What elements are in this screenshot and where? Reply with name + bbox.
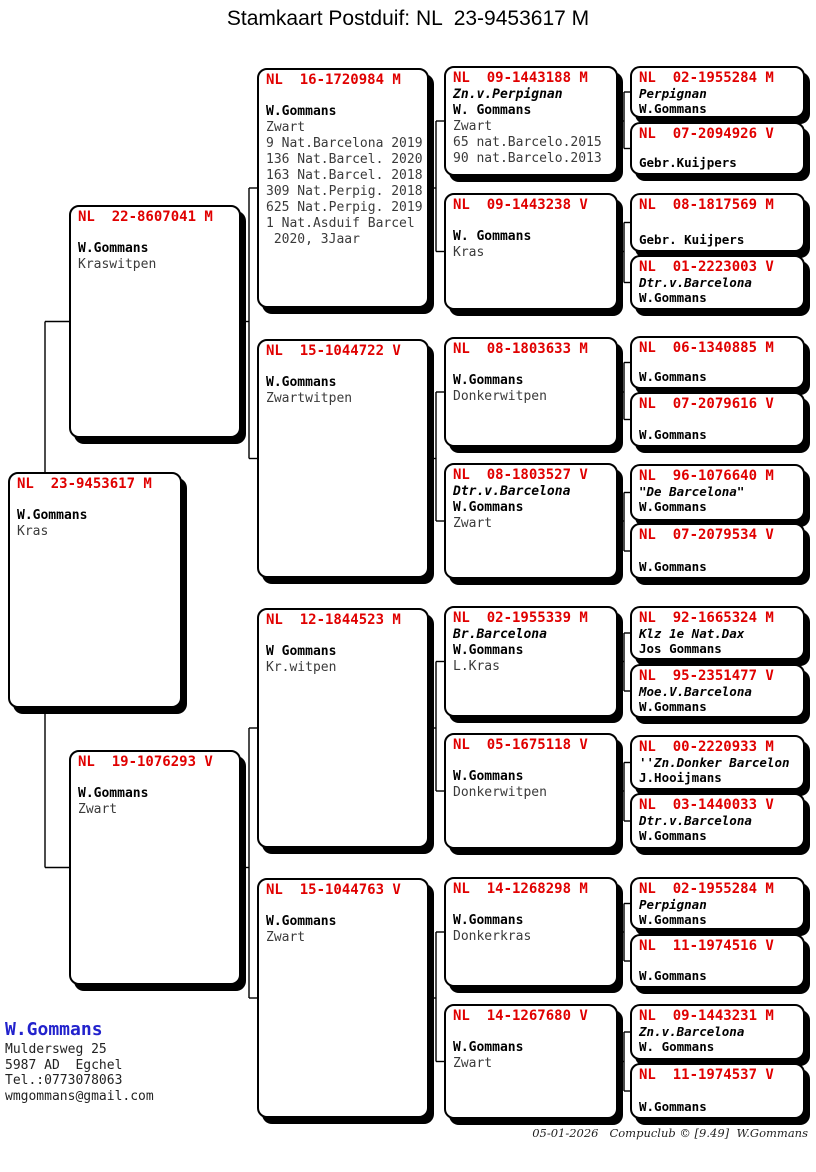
owner-name: W Gommans — [266, 644, 422, 660]
pigeon-detail: Zwart — [266, 930, 422, 946]
ring-number: NL 02-1955284 M — [639, 70, 798, 86]
pigeon-box-fffm: NL 07-2094926 VGebr.Kuijpers — [630, 122, 805, 175]
owner-name: W.Gommans — [78, 786, 234, 802]
pigeon-detail: Donkerwitpen — [453, 389, 611, 405]
ring-number: NL 08-1803633 M — [453, 341, 611, 358]
pigeon-box-fff: NL 09-1443188 MZn.v.PerpignanW. GommansZ… — [444, 66, 618, 176]
ring-number: NL 09-1443231 M — [639, 1008, 798, 1024]
pigeon-box-ffm: NL 09-1443238 VW. GommansKras — [444, 193, 618, 310]
owner-name: W.Gommans — [639, 968, 798, 983]
pigeon-box-mmff: NL 02-1955284 MPerpignanW.Gommans — [630, 877, 805, 930]
owner-name: W.Gommans — [453, 1040, 611, 1056]
pigeon-detail: 163 Nat.Barcel. 2018 — [266, 168, 422, 184]
spacer — [453, 214, 611, 229]
owner-name: W.Gommans — [266, 104, 422, 120]
owner-name: W.Gommans — [639, 427, 798, 442]
owner-name: W. Gommans — [453, 229, 611, 245]
pigeon-box-mfm: NL 05-1675118 VW.GommansDonkerwitpen — [444, 733, 618, 849]
pigeon-detail: Kraswitpen — [78, 257, 234, 273]
pigeon-detail: Zwart — [453, 119, 611, 135]
pigeon-box-ffmf: NL 08-1817569 MGebr. Kuijpers — [630, 193, 805, 252]
pigeon-nickname: Zn.v.Barcelona — [639, 1024, 798, 1039]
owner-name: Gebr.Kuijpers — [639, 155, 798, 170]
pigeon-detail: 9 Nat.Barcelona 2019 — [266, 136, 422, 152]
pigeon-box-fm: NL 15-1044722 VW.GommansZwartwitpen — [257, 339, 429, 578]
owner-name: W.Gommans — [639, 369, 798, 384]
owner-name: W.Gommans — [639, 101, 798, 116]
pigeon-detail: Kras — [17, 524, 175, 540]
owner-name: W.Gommans — [639, 1099, 798, 1114]
ring-number: NL 09-1443188 M — [453, 70, 611, 87]
pigeon-nickname: Klz 1e Nat.Dax — [639, 626, 798, 641]
pigeon-detail: Donkerkras — [453, 929, 611, 945]
pigeon-nickname: Dtr.v.Barcelona — [639, 275, 798, 290]
ring-number: NL 00-2220933 M — [639, 739, 798, 755]
pigeon-nickname: Dtr.v.Barcelona — [639, 813, 798, 828]
pigeon-detail: 1 Nat.Asduif Barcel — [266, 216, 422, 232]
spacer — [453, 358, 611, 373]
pigeon-box-mfmf: NL 00-2220933 M''Zn.Donker BarcelonJ.Hoo… — [630, 735, 805, 790]
ring-number: NL 02-1955339 M — [453, 610, 611, 627]
breeder-address-street: Muldersweg 25 — [5, 1042, 154, 1058]
owner-name: W.Gommans — [453, 769, 611, 785]
pigeon-box-mffm: NL 95-2351477 VMoe.V.BarcelonaW.Gommans — [630, 664, 805, 718]
ring-number: NL 02-1955284 M — [639, 881, 798, 897]
owner-name: W.Gommans — [639, 912, 798, 927]
pigeon-detail: 136 Nat.Barcel. 2020 — [266, 152, 422, 168]
pigeon-box-fmmm: NL 07-2079534 VW.Gommans — [630, 523, 805, 579]
ring-number: NL 09-1443238 V — [453, 197, 611, 214]
ring-number: NL 23-9453617 M — [17, 476, 175, 493]
pigeon-box-mmmm: NL 11-1974537 VW.Gommans — [630, 1063, 805, 1119]
pigeon-box-ff: NL 16-1720984 MW.GommansZwart9 Nat.Barce… — [257, 68, 429, 308]
pigeon-box-mfmm: NL 03-1440033 VDtr.v.BarcelonaW.Gommans — [630, 793, 805, 849]
owner-name: W.Gommans — [639, 559, 798, 574]
pigeon-box-father: NL 22-8607041 MW.GommansKraswitpen — [69, 205, 241, 438]
owner-name: W.Gommans — [639, 828, 798, 843]
owner-name: W.Gommans — [639, 699, 798, 714]
pigeon-detail: Zwart — [453, 516, 611, 532]
pigeon-detail: Kras — [453, 245, 611, 261]
pigeon-nickname: Br.Barcelona — [453, 627, 611, 643]
pigeon-box-mmmf: NL 09-1443231 MZn.v.BarcelonaW. Gommans — [630, 1004, 805, 1060]
pigeon-box-subject: NL 23-9453617 MW.GommansKras — [8, 472, 182, 708]
ring-number: NL 03-1440033 V — [639, 797, 798, 813]
pigeon-box-fmff: NL 06-1340885 MW.Gommans — [630, 336, 805, 389]
owner-name: W.Gommans — [17, 508, 175, 524]
ring-number: NL 95-2351477 V — [639, 668, 798, 684]
pigeon-box-mother: NL 19-1076293 VW.GommansZwart — [69, 750, 241, 985]
owner-name: J.Hooijmans — [639, 770, 798, 785]
pigeon-box-mfff: NL 92-1665324 MKlz 1e Nat.DaxJos Gommans — [630, 606, 805, 660]
spacer — [453, 1025, 611, 1040]
spacer — [453, 754, 611, 769]
owner-name: W. Gommans — [453, 103, 611, 119]
pigeon-box-mf: NL 12-1844523 MW GommansKr.witpen — [257, 608, 429, 848]
ring-number: NL 07-2094926 V — [639, 126, 798, 142]
pigeon-box-fmm: NL 08-1803527 VDtr.v.BarcelonaW.GommansZ… — [444, 463, 618, 579]
pigeon-detail: L.Kras — [453, 659, 611, 675]
ring-number: NL 22-8607041 M — [78, 209, 234, 226]
owner-name: W. Gommans — [639, 1039, 798, 1054]
owner-name: Gebr. Kuijpers — [639, 232, 798, 247]
pigeon-detail: 90 nat.Barcelo.2013 — [453, 151, 611, 167]
breeder-info: W.Gommans Muldersweg 25 5987 AD Egchel T… — [5, 1018, 154, 1104]
pigeon-nickname: Perpignan — [639, 897, 798, 912]
ring-number: NL 14-1268298 M — [453, 881, 611, 898]
pigeon-detail: Zwart — [78, 802, 234, 818]
ring-number: NL 08-1817569 M — [639, 197, 798, 213]
pigeon-nickname: "De Barcelona" — [639, 484, 798, 499]
pigeon-nickname: Dtr.v.Barcelona — [453, 484, 611, 500]
owner-name: W.Gommans — [453, 643, 611, 659]
owner-name: W.Gommans — [639, 290, 798, 305]
ring-number: NL 11-1974537 V — [639, 1067, 798, 1083]
ring-number: NL 05-1675118 V — [453, 737, 611, 754]
ring-number: NL 19-1076293 V — [78, 754, 234, 771]
ring-number: NL 07-2079534 V — [639, 527, 798, 543]
pigeon-box-fmmf: NL 96-1076640 M"De Barcelona"W.Gommans — [630, 464, 805, 521]
spacer — [78, 771, 234, 786]
breeder-address-city: 5987 AD Egchel — [5, 1058, 154, 1074]
spacer — [266, 899, 422, 914]
spacer — [266, 629, 422, 644]
pigeon-nickname: Zn.v.Perpignan — [453, 87, 611, 103]
ring-number: NL 01-2223003 V — [639, 259, 798, 275]
pigeon-box-mff: NL 02-1955339 MBr.BarcelonaW.GommansL.Kr… — [444, 606, 618, 717]
pigeon-detail: 625 Nat.Perpig. 2019 — [266, 200, 422, 216]
ring-number: NL 11-1974516 V — [639, 938, 798, 954]
pigeon-detail: 309 Nat.Perpig. 2018 — [266, 184, 422, 200]
breeder-phone: Tel.:0773078063 — [5, 1073, 154, 1089]
pigeon-box-fmf: NL 08-1803633 MW.GommansDonkerwitpen — [444, 337, 618, 447]
pigeon-detail: 65 nat.Barcelo.2015 — [453, 135, 611, 151]
ring-number: NL 96-1076640 M — [639, 468, 798, 484]
spacer — [266, 89, 422, 104]
pigeon-detail: Donkerwitpen — [453, 785, 611, 801]
ring-number: NL 14-1267680 V — [453, 1008, 611, 1025]
pigeon-detail: Zwartwitpen — [266, 391, 422, 407]
pigeon-nickname: ''Zn.Donker Barcelon — [639, 755, 798, 770]
owner-name: Jos Gommans — [639, 641, 798, 656]
breeder-name: W.Gommans — [5, 1018, 154, 1042]
owner-name: W.Gommans — [453, 500, 611, 516]
pigeon-detail: Zwart — [266, 120, 422, 136]
pigeon-detail: Zwart — [453, 1056, 611, 1072]
owner-name: W.Gommans — [78, 241, 234, 257]
pigeon-detail: Kr.witpen — [266, 660, 422, 676]
ring-number: NL 07-2079616 V — [639, 396, 798, 412]
breeder-email: wmgommans@gmail.com — [5, 1089, 154, 1105]
pigeon-box-ffff: NL 02-1955284 MPerpignanW.Gommans — [630, 66, 805, 118]
pigeon-nickname: Perpignan — [639, 86, 798, 101]
ring-number: NL 12-1844523 M — [266, 612, 422, 629]
pigeon-box-fmfm: NL 07-2079616 VW.Gommans — [630, 392, 805, 447]
owner-name: W.Gommans — [639, 499, 798, 514]
pigeon-detail: 2020, 3Jaar — [266, 232, 422, 248]
pigeon-box-mmfm: NL 11-1974516 VW.Gommans — [630, 934, 805, 988]
ring-number: NL 15-1044763 V — [266, 882, 422, 899]
pigeon-box-ffmm: NL 01-2223003 VDtr.v.BarcelonaW.Gommans — [630, 255, 805, 310]
ring-number: NL 92-1665324 M — [639, 610, 798, 626]
owner-name: W.Gommans — [453, 373, 611, 389]
pigeon-nickname: Moe.V.Barcelona — [639, 684, 798, 699]
owner-name: W.Gommans — [266, 375, 422, 391]
ring-number: NL 16-1720984 M — [266, 72, 422, 89]
pigeon-box-mm: NL 15-1044763 VW.GommansZwart — [257, 878, 429, 1118]
ring-number: NL 06-1340885 M — [639, 340, 798, 356]
owner-name: W.Gommans — [453, 913, 611, 929]
ring-number: NL 15-1044722 V — [266, 343, 422, 360]
spacer — [453, 898, 611, 913]
footer-credit: 05-01-2026 Compuclub © [9.49] W.Gommans — [532, 1126, 808, 1140]
spacer — [17, 493, 175, 508]
pigeon-box-mmm: NL 14-1267680 VW.GommansZwart — [444, 1004, 618, 1119]
spacer — [266, 360, 422, 375]
spacer — [78, 226, 234, 241]
ring-number: NL 08-1803527 V — [453, 467, 611, 484]
pigeon-box-mmf: NL 14-1268298 MW.GommansDonkerkras — [444, 877, 618, 987]
stamkaart-page: Stamkaart Postduif: NL 23-9453617 M W.Go… — [0, 0, 816, 1172]
owner-name: W.Gommans — [266, 914, 422, 930]
